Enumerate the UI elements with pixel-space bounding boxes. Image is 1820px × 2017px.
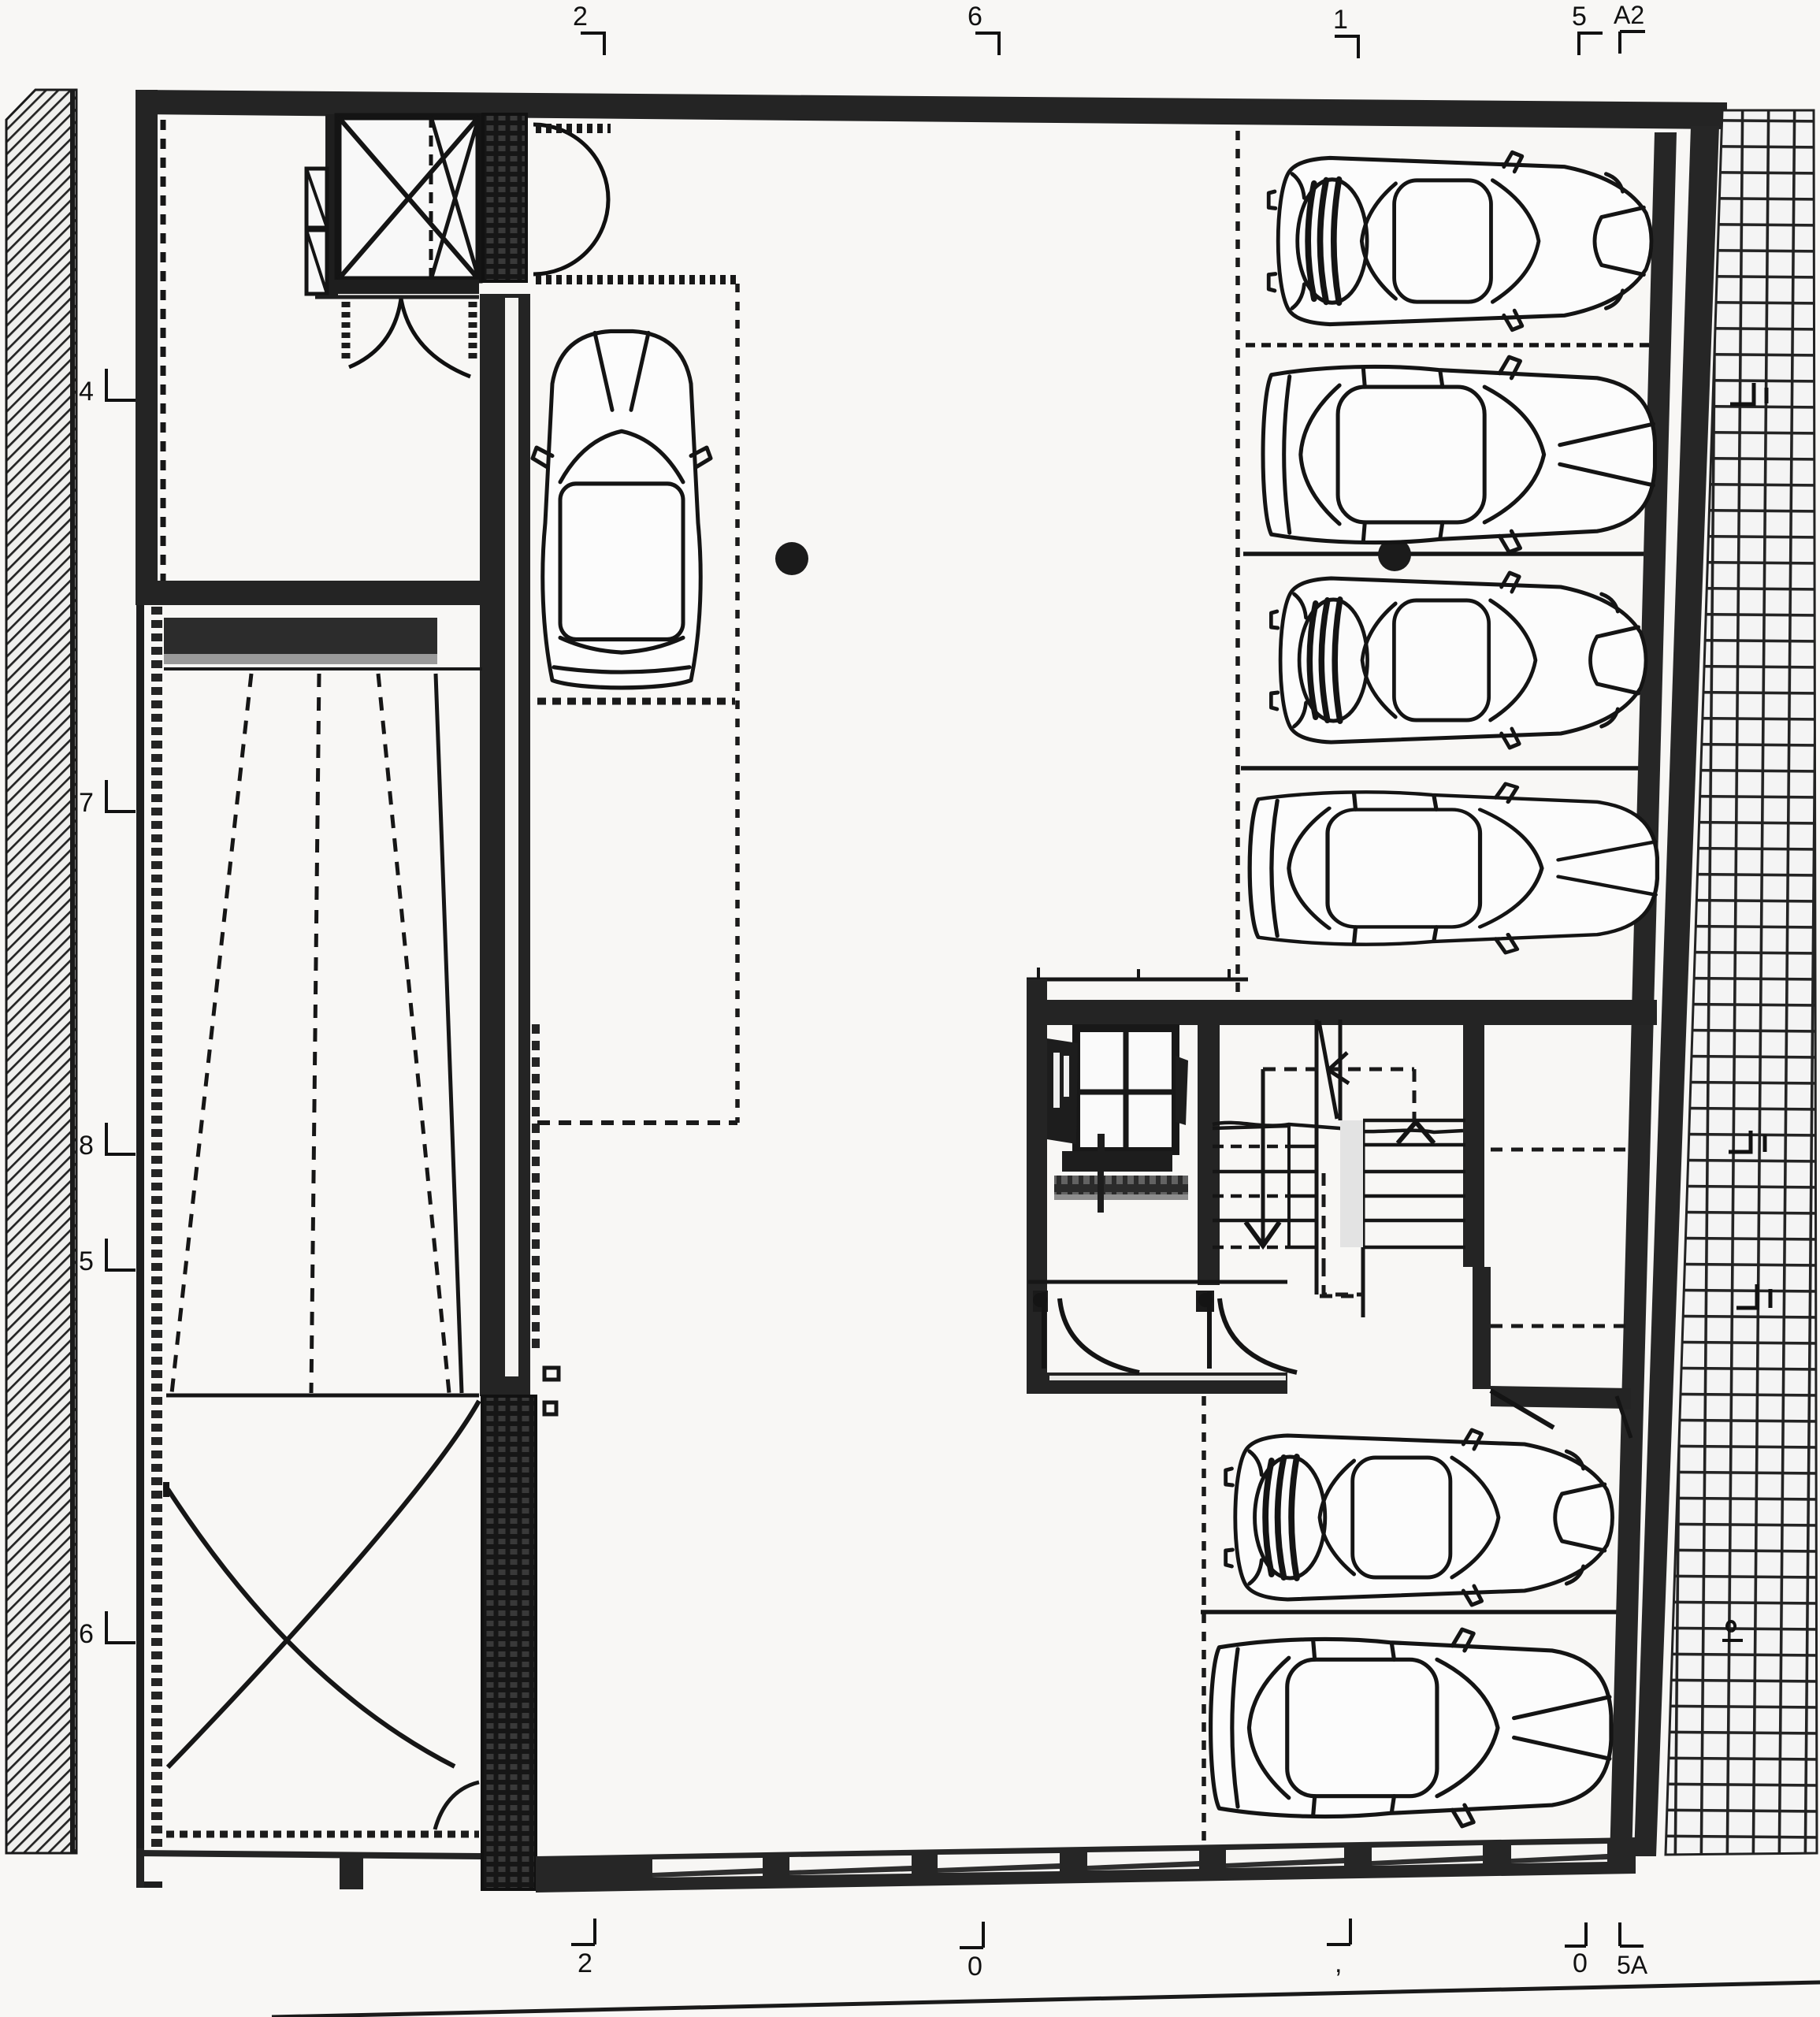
svg-text:0: 0 <box>1573 1948 1588 1978</box>
svg-text:A2: A2 <box>1614 1 1644 29</box>
svg-text:5: 5 <box>1572 2 1587 32</box>
svg-text:2: 2 <box>573 2 588 32</box>
svg-text:0: 0 <box>968 1952 982 1982</box>
svg-text:7: 7 <box>79 788 94 818</box>
svg-text:5: 5 <box>79 1246 94 1276</box>
svg-text:6: 6 <box>968 2 982 32</box>
svg-text:2: 2 <box>578 1948 592 1978</box>
svg-text:6: 6 <box>79 1619 94 1649</box>
svg-text:5A: 5A <box>1617 1951 1648 1979</box>
svg-text:8: 8 <box>79 1131 94 1161</box>
svg-text:4: 4 <box>79 377 94 407</box>
svg-text:,: , <box>1335 1948 1342 1978</box>
svg-text:1: 1 <box>1333 5 1348 35</box>
